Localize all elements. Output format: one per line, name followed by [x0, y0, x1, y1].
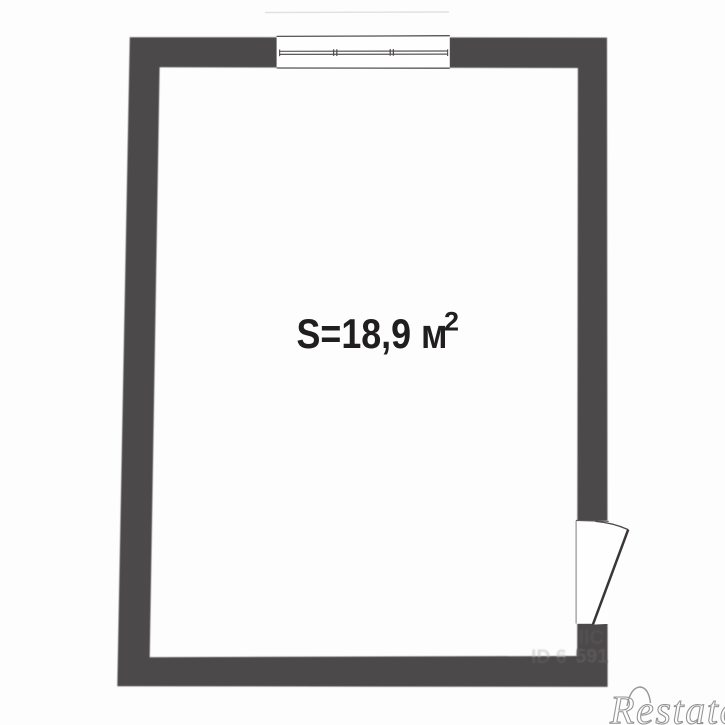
svg-text:2: 2: [444, 307, 459, 337]
svg-text:IIC: IIC: [579, 627, 605, 649]
svg-text:S=18,9 м: S=18,9 м: [297, 310, 448, 357]
svg-text:Restate: Restate: [609, 688, 725, 725]
